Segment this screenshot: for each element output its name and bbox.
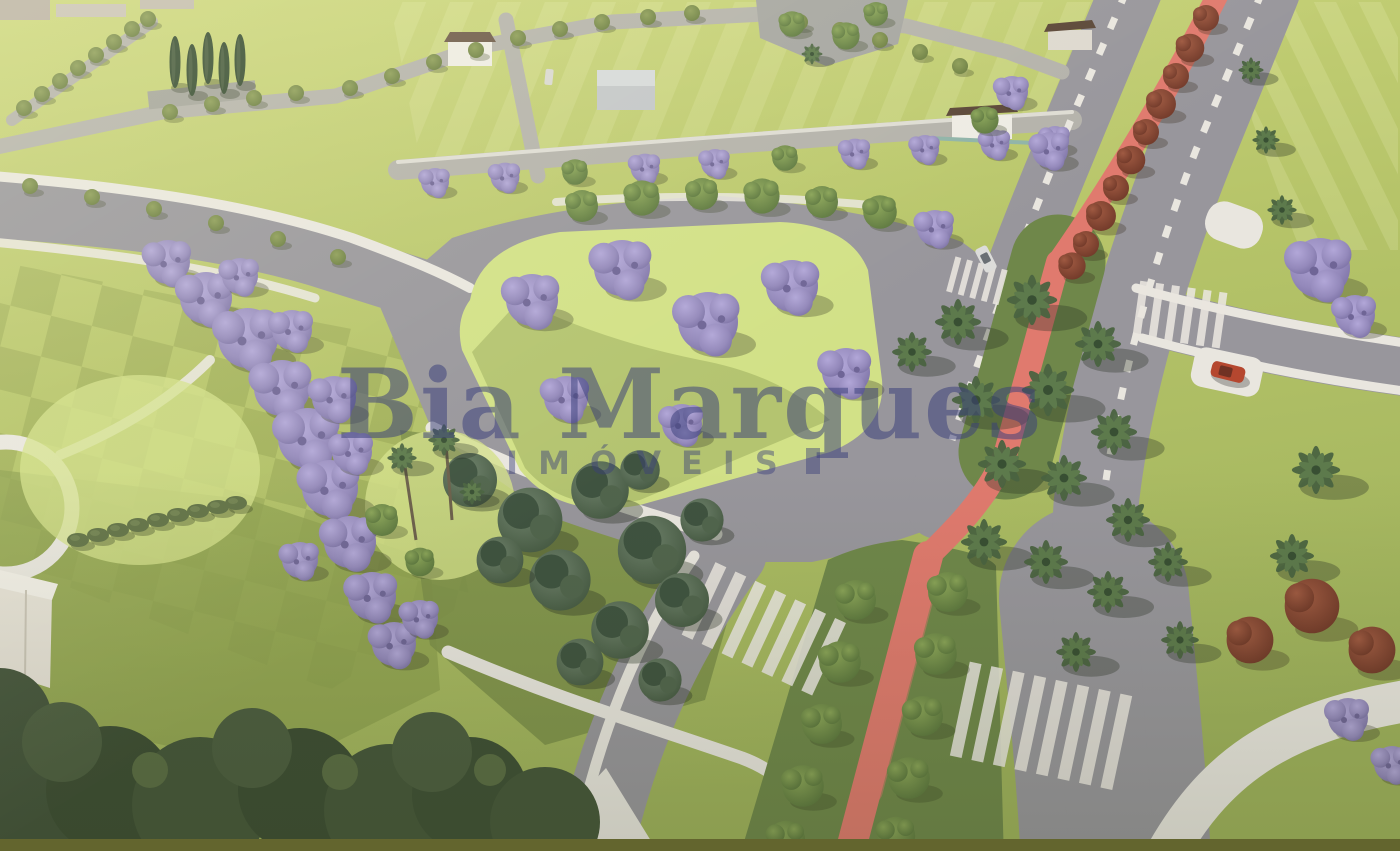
watermark-logo-mark: [806, 448, 820, 474]
masterplan-scene: Bia Marques IMÓVEIS: [0, 0, 1400, 851]
watermark-tagline-text: IMÓVEIS: [506, 443, 798, 482]
bottom-edge-band: [0, 839, 1400, 851]
aerial-render: Bia Marques IMÓVEIS: [0, 0, 1400, 851]
